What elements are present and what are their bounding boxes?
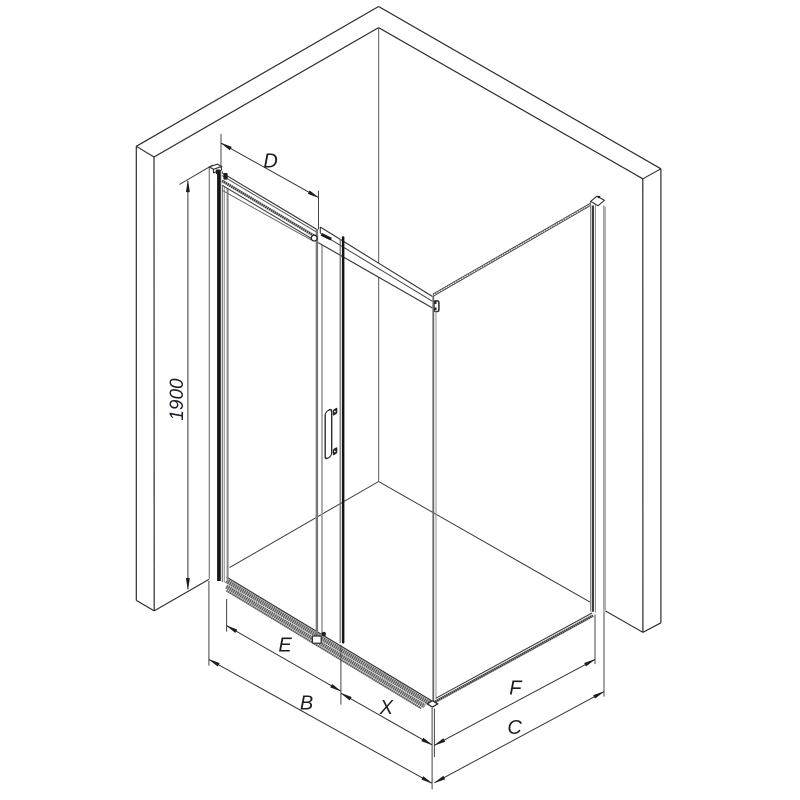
svg-text:E: E bbox=[278, 635, 292, 657]
svg-text:X: X bbox=[379, 697, 394, 719]
svg-text:C: C bbox=[507, 717, 522, 739]
svg-text:1900: 1900 bbox=[167, 378, 188, 421]
svg-text:B: B bbox=[300, 693, 313, 715]
svg-text:F: F bbox=[509, 678, 523, 700]
svg-text:D: D bbox=[263, 150, 277, 172]
